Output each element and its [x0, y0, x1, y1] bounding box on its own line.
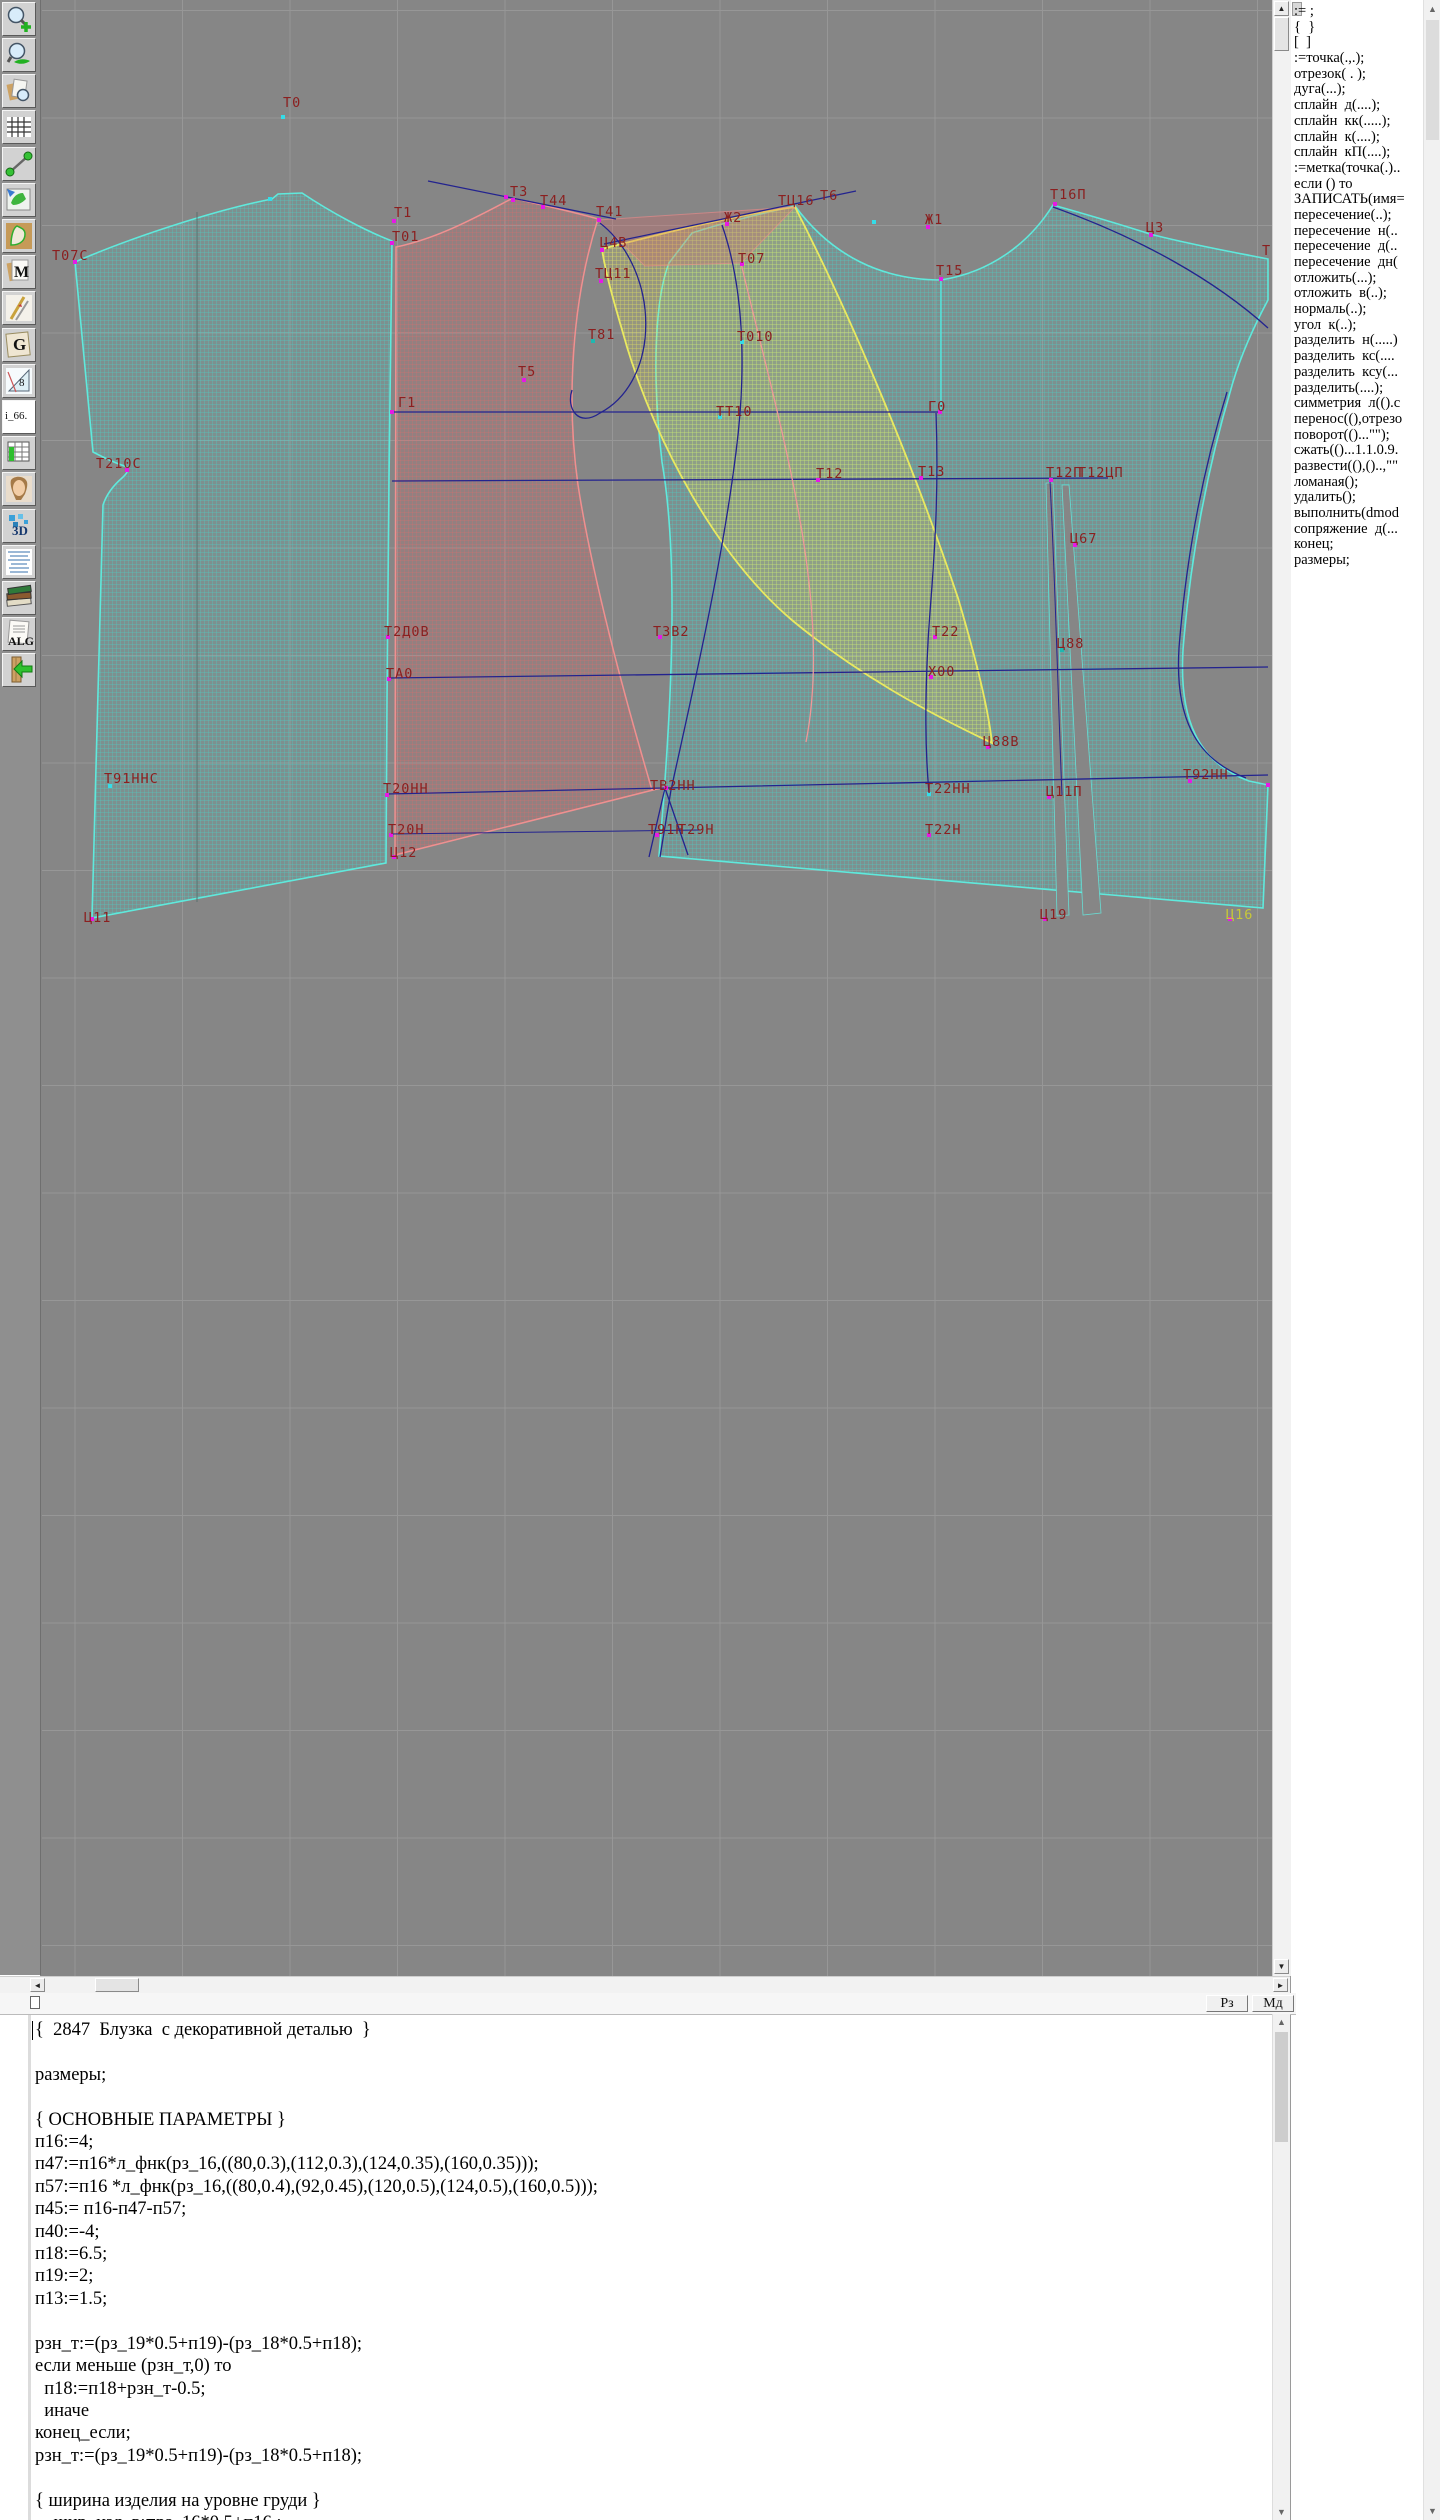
portrait-icon [4, 474, 34, 504]
canvas-label: Ц88 [1057, 636, 1084, 652]
panel-item[interactable]: если () то [1294, 176, 1422, 192]
alg-button[interactable]: ALG [2, 617, 36, 651]
threed-label: 3D [12, 523, 28, 539]
canvas-label: Т2Д0В [384, 624, 430, 640]
panel-item[interactable]: дуга(...); [1294, 81, 1422, 97]
editor-scrollbar[interactable]: ▲ ▼ [1272, 2014, 1290, 2520]
panel-item[interactable]: разделить ксу(... [1294, 364, 1422, 380]
canvas-label: Т16П [1050, 187, 1087, 203]
canvas-label: Т07 [738, 251, 765, 267]
i66-label: i_66. [5, 410, 27, 422]
panel-item[interactable]: удалить(); [1294, 489, 1422, 505]
panel-scroll-up-icon[interactable]: ▲ [1424, 4, 1440, 14]
panel-item[interactable]: выполнить(dmod [1294, 505, 1422, 521]
panel-item[interactable]: нормаль(..); [1294, 301, 1422, 317]
canvas-label: ТТ10 [716, 404, 753, 420]
canvas-label: Т13 [918, 464, 945, 480]
panel-item[interactable]: отложить(...); [1294, 270, 1422, 286]
m-label: M [14, 264, 29, 282]
code-editor[interactable]: { 2847 Блузка с декоративной деталью } р… [0, 2014, 1272, 2520]
list-button[interactable] [2, 545, 36, 579]
commands-panel: := ;{ }[ ]:=точка(.,.);отрезок( . );дуга… [1290, 0, 1424, 2520]
panel-item[interactable]: сплайн кП(....); [1294, 144, 1422, 160]
exit-button[interactable] [2, 653, 36, 687]
canvas-label: Ж2 [724, 210, 742, 226]
panel-item[interactable]: разделить н(.....) [1294, 332, 1422, 348]
vertical-scroll-thumb[interactable] [1274, 17, 1289, 51]
pattern-canvas[interactable]: Т0Т07СТ210СТ91ННСЦ11Т1Т01Г1Т3Т44Т41Ц4ВТЦ… [0, 0, 1272, 1976]
point-marker [390, 410, 394, 414]
grid-button[interactable] [2, 110, 36, 144]
canvas-label: Ц88В [983, 734, 1020, 750]
canvas-label: Т1 [394, 205, 412, 221]
md-button[interactable]: Мд [1252, 1995, 1294, 2012]
editor-gutter [28, 2014, 31, 2520]
canvas-label: Ж1 [925, 212, 943, 228]
canvas-label: Т91ННС [104, 771, 159, 787]
panel-item[interactable]: { } [1294, 19, 1422, 35]
pattern-piece-button[interactable] [2, 219, 36, 253]
status-bar: Рз Мд [0, 1993, 1296, 2015]
panel-item[interactable]: угол к(..); [1294, 317, 1422, 333]
command-list: := ;{ }[ ]:=точка(.,.);отрезок( . );дуга… [1294, 3, 1422, 568]
canvas-horizontal-scrollbar[interactable]: ◄ ► [0, 1976, 1290, 1994]
panel-item[interactable]: симметрия л(().с [1294, 395, 1422, 411]
point-marker [1266, 783, 1270, 787]
editor-scroll-up-icon[interactable]: ▲ [1273, 2017, 1290, 2027]
panel-item[interactable]: развести((),()..,"" [1294, 458, 1422, 474]
canvas-label: Т81 [588, 327, 615, 343]
canvas-label: Т20НН [383, 781, 429, 797]
panel-item[interactable]: отложить в(..); [1294, 285, 1422, 301]
preview-button[interactable] [2, 74, 36, 108]
canvas-label: Т12 [816, 466, 843, 482]
ruler-button[interactable]: 8 [2, 364, 36, 398]
canvas-label: Ц11П [1046, 784, 1083, 800]
canvas-label: Т6 [820, 188, 838, 204]
panel-item[interactable]: отрезок( . ); [1294, 66, 1422, 82]
panel-item[interactable]: сплайн д(....); [1294, 97, 1422, 113]
panel-item[interactable]: размеры; [1294, 552, 1422, 568]
canvas-label: Т29Н [678, 822, 715, 838]
left-toolbar: M G 8 i_66. 3D ALG [0, 0, 41, 1975]
panel-item[interactable]: разделить кс(.... [1294, 348, 1422, 364]
pattern-piece-icon [4, 221, 34, 251]
table-icon [4, 438, 34, 468]
canvas-label: Т92НН [1183, 767, 1229, 783]
canvas-label: Т22Н [925, 822, 962, 838]
canvas-label: Т20Н [388, 822, 425, 838]
canvas-label: Т07С [52, 248, 89, 264]
canvas-label: Т01 [392, 229, 419, 245]
measure-icon [4, 149, 34, 179]
panel-item[interactable]: сжать(()...1.1.0.9. [1294, 442, 1422, 458]
panel-item[interactable]: сплайн к(....); [1294, 129, 1422, 145]
preview-icon [4, 76, 34, 106]
zoom-out-button[interactable] [2, 38, 36, 72]
canvas-label: Г1 [398, 395, 416, 411]
canvas-label: Т3 [510, 184, 528, 200]
panel-item[interactable]: :=точка(.,.); [1294, 50, 1422, 66]
canvas-label: Т44 [540, 193, 567, 209]
panel-item[interactable]: пересечение дн( [1294, 254, 1422, 270]
panel-item[interactable]: разделить(....); [1294, 380, 1422, 396]
canvas-label: Ц67 [1070, 531, 1097, 547]
canvas-label: ТВ2НН [650, 778, 696, 794]
model-button[interactable]: M [2, 255, 36, 289]
grid-icon [4, 112, 34, 142]
canvas-label: Т22НН [925, 781, 971, 797]
canvas-label: Т22 [932, 624, 959, 640]
point-marker [872, 220, 876, 224]
horizontal-scroll-thumb[interactable] [95, 1978, 139, 1992]
panel-item[interactable]: сплайн кк(.....); [1294, 113, 1422, 129]
books-icon [4, 583, 34, 613]
zoom-out-icon [4, 40, 34, 70]
geometry-button[interactable]: G [2, 328, 36, 362]
threed-button[interactable]: 3D [2, 509, 36, 543]
panel-item[interactable]: пересечение н(.. [1294, 223, 1422, 239]
portrait-button[interactable] [2, 472, 36, 506]
panel-item[interactable]: пересечение д(.. [1294, 238, 1422, 254]
panel-item[interactable]: :=метка(точка(.).. [1294, 160, 1422, 176]
canvas-label: Ц16 [1226, 907, 1253, 923]
panel-item[interactable]: сопряжение д(... [1294, 521, 1422, 537]
zoom-in-button[interactable] [2, 2, 36, 36]
ruler-8-label: 8 [19, 377, 25, 389]
map-button[interactable] [2, 183, 36, 217]
canvas-label: Т210С [96, 456, 142, 472]
canvas-label: Г0 [928, 399, 946, 415]
canvas-label: Т010 [737, 329, 774, 345]
editor-text[interactable]: { 2847 Блузка с декоративной деталью } р… [35, 2019, 598, 2520]
canvas-label: Т12ЦП [1078, 465, 1124, 481]
canvas-label: ТЦ11 [595, 266, 632, 282]
canvas-label: Т [1262, 243, 1271, 259]
splitter-handle[interactable] [30, 1996, 40, 2009]
panel-item[interactable]: ЗАПИСАТЬ(имя= [1294, 191, 1422, 207]
panel-item[interactable]: перенос((),отрезо [1294, 411, 1422, 427]
scroll-left-button[interactable]: ◄ [30, 1978, 45, 1992]
panel-item[interactable]: поворот(()...""); [1294, 427, 1422, 443]
panel-scrollbar[interactable]: ▲ ▼ [1423, 0, 1440, 2520]
list-icon [4, 547, 34, 577]
canvas-label: Т41 [596, 204, 623, 220]
panel-item[interactable]: := ; [1294, 3, 1422, 19]
measure-button[interactable] [2, 147, 36, 181]
scroll-down-button[interactable]: ▼ [1274, 1959, 1289, 1974]
books-button[interactable] [2, 581, 36, 615]
panel-item[interactable]: ломаная(); [1294, 474, 1422, 490]
panel-item[interactable]: [ ] [1294, 34, 1422, 50]
canvas-label: Ц4В [600, 235, 627, 251]
alg-label: ALG [8, 634, 34, 649]
canvas-label: Ц3 [1146, 220, 1164, 236]
canvas-label: Т15 [936, 263, 963, 279]
panel-item[interactable]: пересечение(..); [1294, 207, 1422, 223]
canvas-label: ТА0 [386, 666, 413, 682]
panel-item[interactable]: конец; [1294, 536, 1422, 552]
point-marker [281, 115, 285, 119]
canvas-label: Ц11 [84, 910, 111, 926]
g-label: G [13, 335, 26, 355]
editor-scroll-down-icon[interactable]: ▼ [1273, 2507, 1290, 2517]
piece-back-left[interactable] [75, 193, 392, 918]
i66-button[interactable]: i_66. [2, 400, 36, 434]
point-marker [504, 195, 508, 199]
scroll-right-button[interactable]: ► [1273, 1978, 1288, 1992]
panel-scroll-thumb[interactable] [1426, 20, 1439, 140]
panel-scroll-down-icon[interactable]: ▼ [1424, 2506, 1440, 2516]
canvas-vertical-scrollbar[interactable]: ▲ ▼ [1272, 0, 1291, 1976]
zoom-in-icon [4, 4, 34, 34]
text-caret [32, 2021, 33, 2040]
exit-icon [4, 655, 34, 685]
canvas-label: Ц12 [390, 845, 417, 861]
drafting-icon [4, 293, 34, 323]
editor-scroll-thumb[interactable] [1275, 2032, 1288, 2142]
point-marker [268, 197, 272, 201]
map-icon [4, 185, 34, 215]
canvas-label: ТЦ16 [778, 193, 815, 209]
canvas-label: ТЗВ2 [653, 624, 690, 640]
drafting-button[interactable] [2, 291, 36, 325]
canvas-label: Х00 [928, 664, 955, 680]
canvas-label: Ц19 [1040, 907, 1067, 923]
scroll-up-button[interactable]: ▲ [1274, 1, 1289, 16]
pattern-pieces [75, 193, 1268, 918]
rz-button[interactable]: Рз [1206, 1995, 1248, 2012]
canvas-label: Т5 [518, 364, 536, 380]
canvas-label: Т0 [283, 95, 301, 111]
table-button[interactable] [2, 436, 36, 470]
